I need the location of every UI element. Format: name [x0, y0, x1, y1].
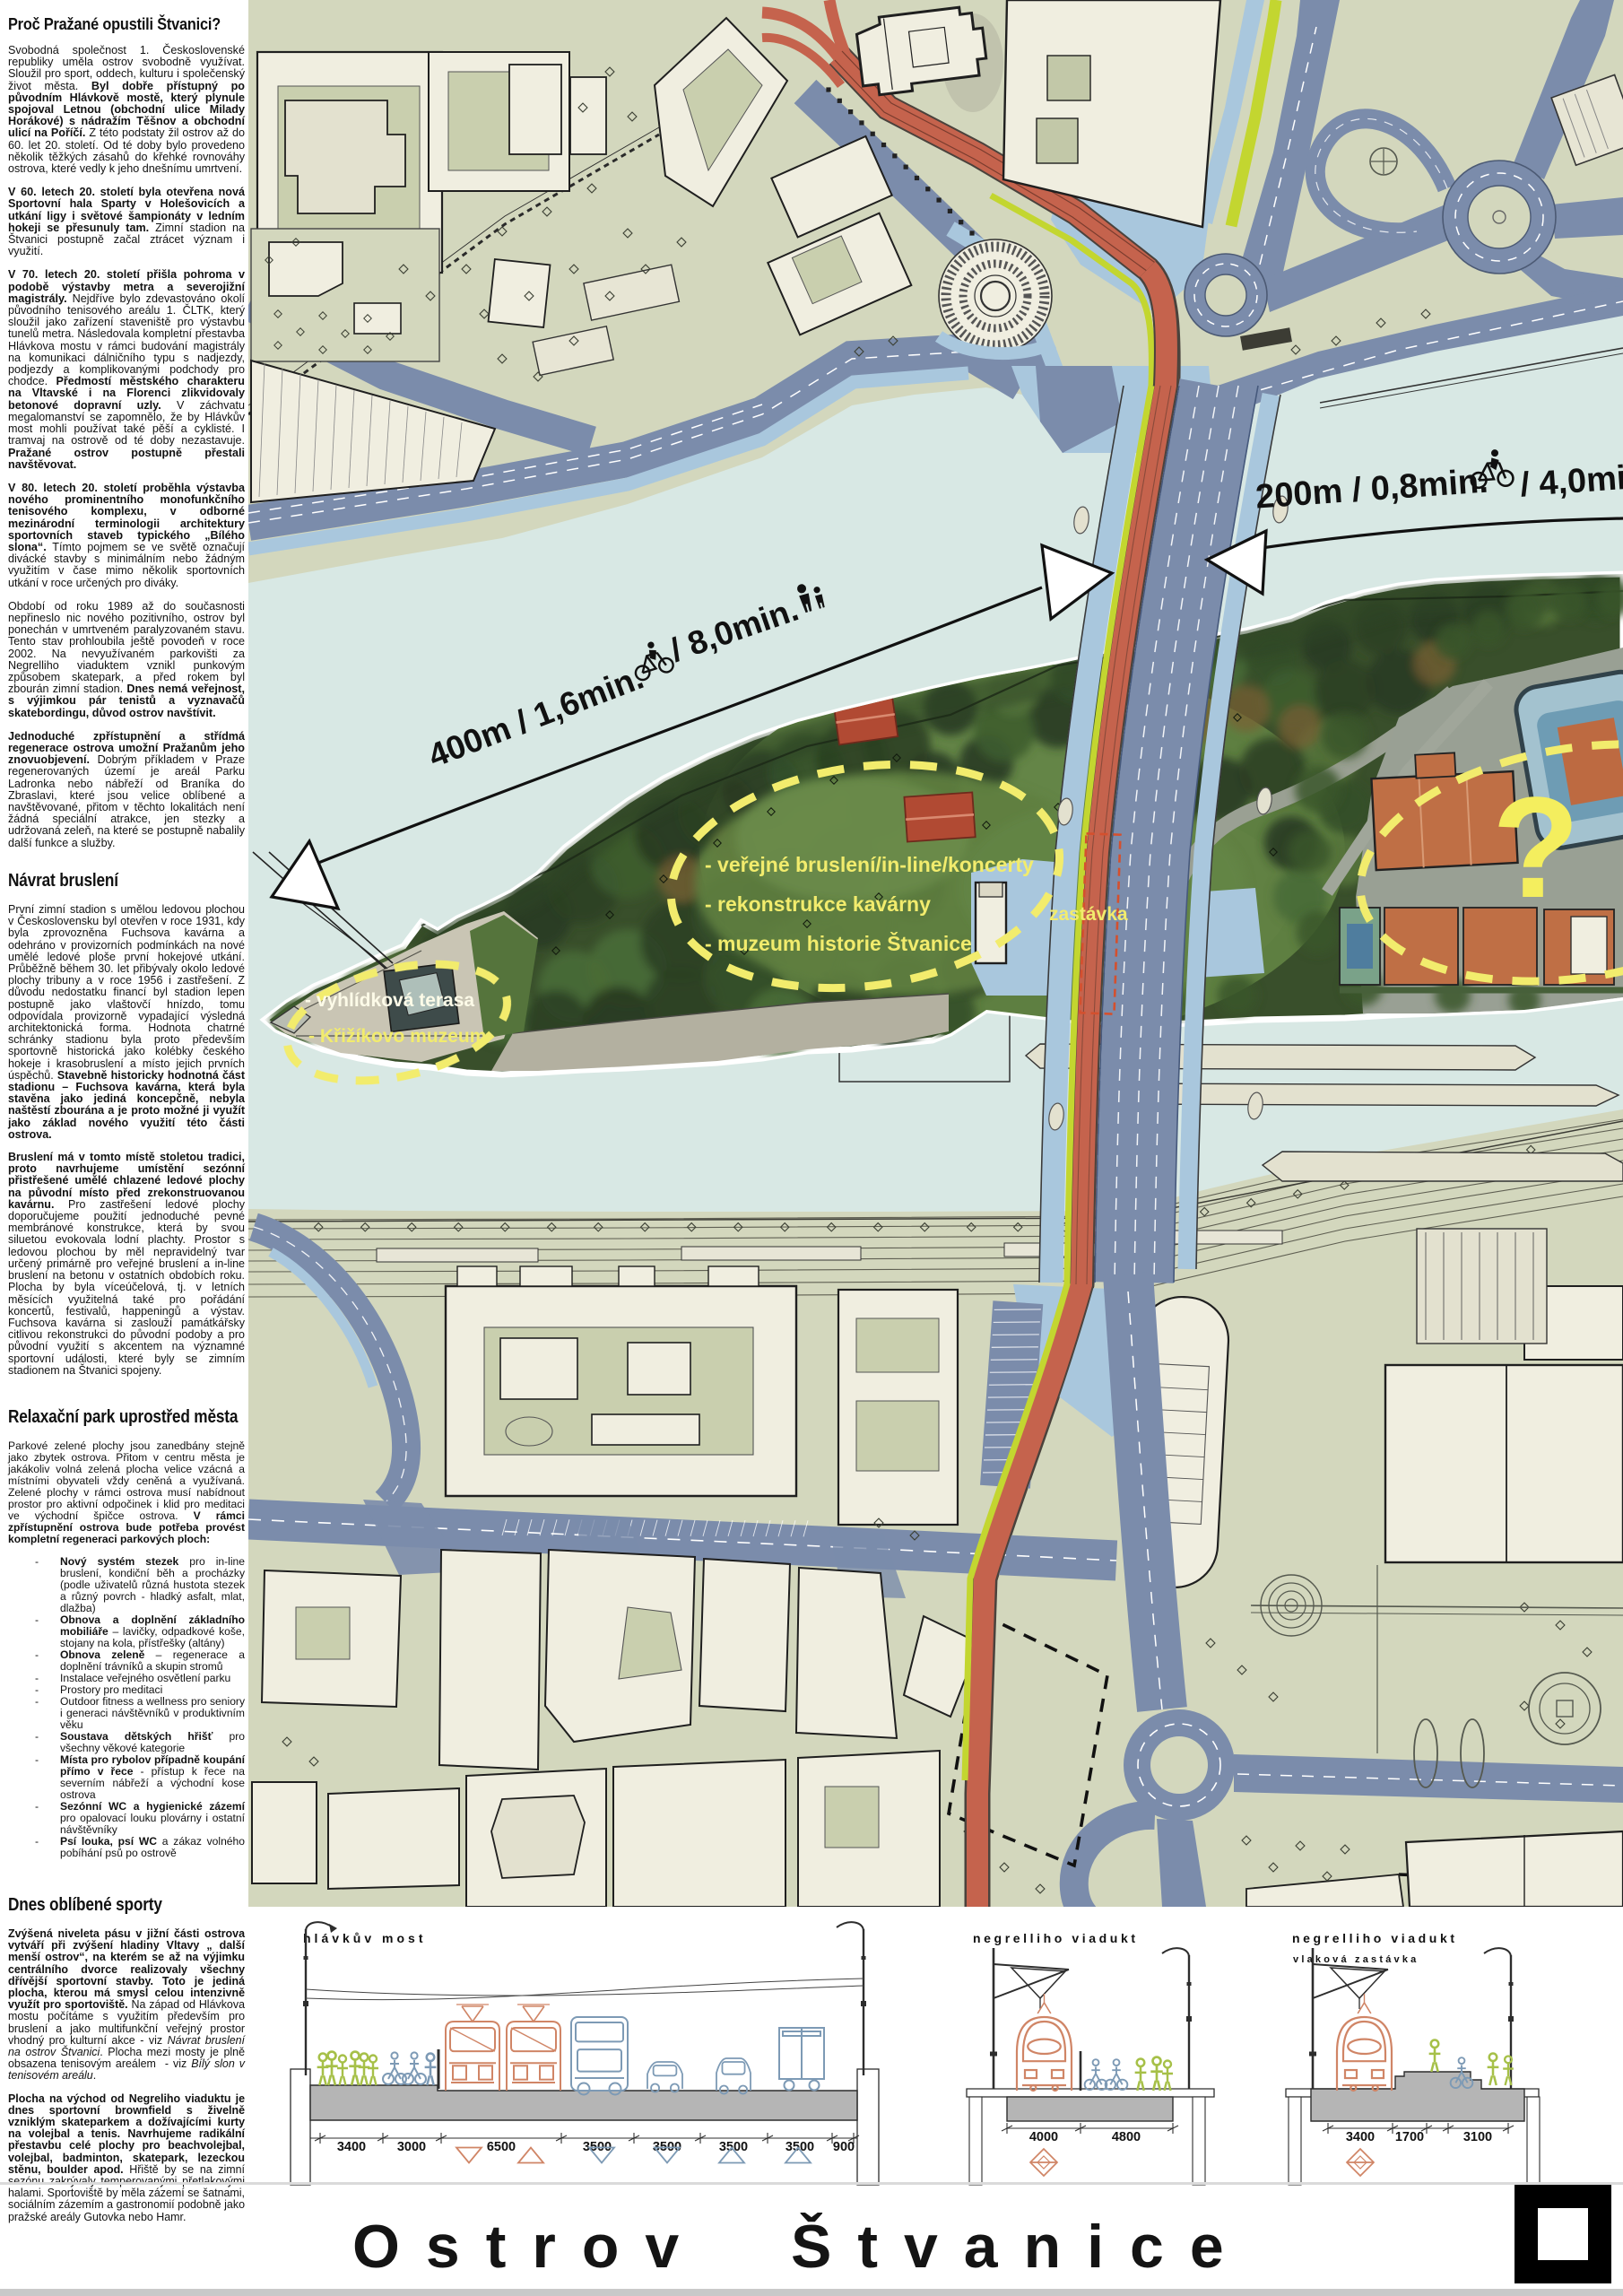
svg-text:6500: 6500 [487, 2140, 516, 2154]
svg-text:- rekonstrukce kavárny: - rekonstrukce kavárny [705, 892, 931, 916]
svg-text:- veřejné bruslení/in-line/kon: - veřejné bruslení/in-line/koncerty [705, 853, 1034, 876]
svg-text:- vyhlídková terasa: - vyhlídková terasa [305, 990, 474, 1011]
svg-text:3100: 3100 [1463, 2130, 1492, 2144]
svg-text:/ 4,0min: / 4,0min [1519, 457, 1623, 504]
svg-text:1700: 1700 [1395, 2130, 1424, 2144]
svg-text:3400: 3400 [1346, 2130, 1375, 2144]
svg-text:hlávkův most: hlávkův most [303, 1931, 426, 1945]
svg-text:negrelliho viadukt: negrelliho viadukt [973, 1931, 1139, 1945]
svg-text:3500: 3500 [785, 2140, 814, 2154]
svg-text:?: ? [1492, 767, 1580, 927]
svg-text:negrelliho viadukt: negrelliho viadukt [1292, 1931, 1458, 1945]
svg-text:4800: 4800 [1112, 2130, 1141, 2144]
svg-text:3000: 3000 [397, 2140, 426, 2154]
svg-text:- Křižíkovo muzeum: - Křižíkovo muzeum [308, 1026, 486, 1047]
svg-text:3400: 3400 [337, 2140, 366, 2154]
svg-text:3500: 3500 [719, 2140, 748, 2154]
svg-text:4000: 4000 [1029, 2130, 1058, 2144]
svg-text:zastávka: zastávka [1049, 904, 1128, 925]
svg-text:- muzeum historie Štvanice: - muzeum historie Štvanice [705, 931, 972, 955]
svg-text:900: 900 [833, 2140, 855, 2154]
